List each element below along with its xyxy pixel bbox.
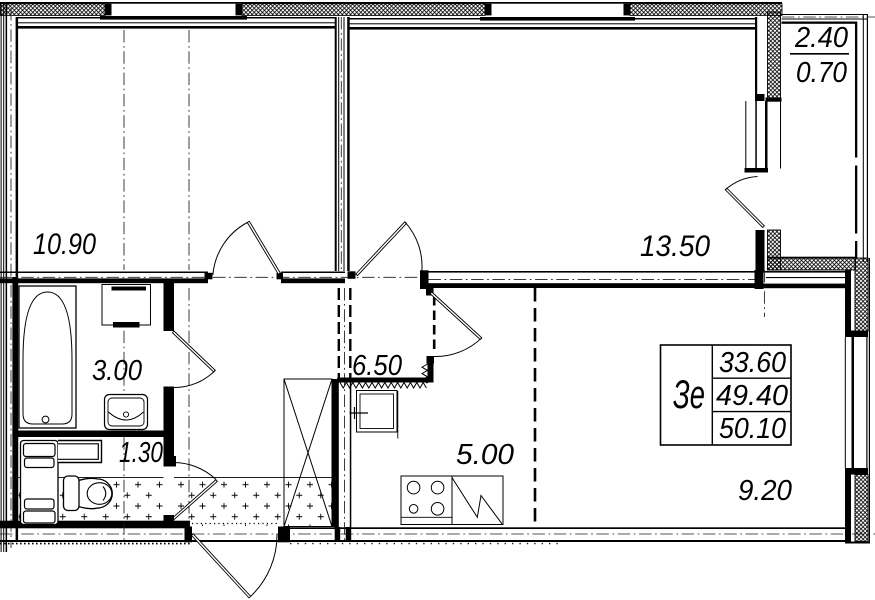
svg-text:13.50: 13.50 <box>640 230 710 263</box>
svg-text:49.40: 49.40 <box>716 380 788 412</box>
svg-text:2.40: 2.40 <box>794 22 848 54</box>
svg-text:33.60: 33.60 <box>719 347 786 379</box>
svg-text:Зе: Зе <box>673 373 705 417</box>
svg-text:9.20: 9.20 <box>738 475 792 507</box>
svg-text:0.70: 0.70 <box>796 57 847 89</box>
svg-text:1.30: 1.30 <box>119 437 163 469</box>
svg-text:3.00: 3.00 <box>92 355 142 387</box>
svg-text:5.00: 5.00 <box>456 439 514 471</box>
svg-text:6.50: 6.50 <box>352 350 402 382</box>
svg-text:50.10: 50.10 <box>719 413 786 445</box>
svg-text:10.90: 10.90 <box>33 228 96 261</box>
